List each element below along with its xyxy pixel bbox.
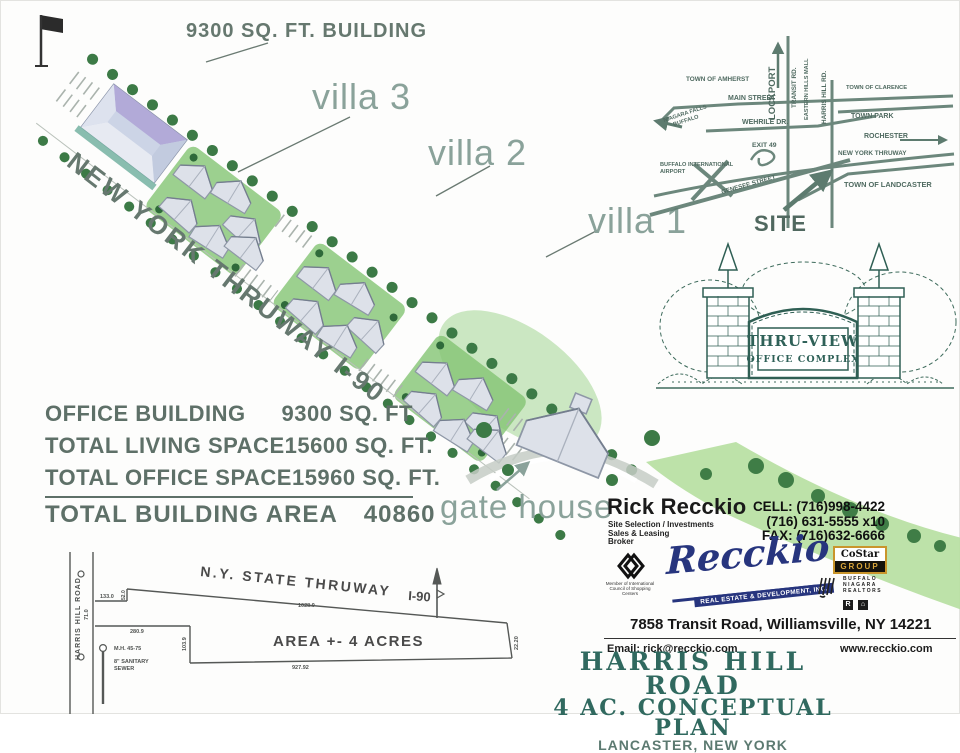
manhole-icons <box>78 571 106 660</box>
sewer-label-1: 8" SANITARY <box>114 659 149 665</box>
broker-address: 7858 Transit Road, Williamsville, NY 142… <box>630 616 931 633</box>
sign-subtitle: OFFICE COMPLEX <box>746 354 859 365</box>
survey-area-label: AREA +- 4 ACRES <box>273 633 424 650</box>
dim-top: 1028.9 <box>298 603 315 609</box>
costar-name: CoStar <box>835 548 885 561</box>
row-label: OFFICE BUILDING <box>45 401 246 427</box>
realtors-line: REALTORS <box>843 588 882 594</box>
recckio-logo-text: Recckio <box>666 529 816 580</box>
icsc-logo: Member of International Council of Shopp… <box>604 552 656 596</box>
map-label-genesee-street: GENESEE STREET <box>721 174 777 196</box>
map-label-wehrile-dr: WEHRILE DR. <box>742 119 788 126</box>
map-label-harris-hill-rd: HARRIS HILL RD. <box>821 71 828 124</box>
waterfall-icon <box>818 576 840 598</box>
dim-280: 280.9 <box>130 629 144 635</box>
dim-2220: 22.20 <box>514 636 520 650</box>
survey-i90-label: I-90 <box>408 588 431 605</box>
realtor-badges: R ⌂ <box>843 600 868 610</box>
table-row: TOTAL LIVING SPACE 15600 SQ. FT. <box>45 430 413 462</box>
row-value: 15960 SQ. FT. <box>292 465 440 491</box>
dim-103: 103.9 <box>182 637 188 651</box>
lantern-icon <box>719 244 888 288</box>
dim-bottom: 927.92 <box>292 665 309 671</box>
inset-location-map: LOCKPORT TRANSIT RD. EASTERN HILLS MALL … <box>648 28 958 236</box>
map-label-town-of-amherst: TOWN OF AMHERST <box>686 76 749 83</box>
map-label-lockport: LOCKPORT <box>767 67 778 121</box>
conceptual-plan-document: 9300 SQ. FT. BUILDING villa 3 villa 2 vi… <box>0 0 960 714</box>
dim-133: 133.0 <box>100 594 114 600</box>
survey-thruway-label: N.Y. STATE THRUWAY <box>200 563 392 599</box>
map-label-transit-rd: TRANSIT RD. <box>791 67 798 108</box>
table-row: TOTAL OFFICE SPACE 15960 SQ. FT. <box>45 462 413 494</box>
total-value: 40860 <box>364 501 436 529</box>
map-label-town-of-clarence: TOWN OF CLARENCE <box>846 85 907 91</box>
map-roads <box>650 36 954 228</box>
row-label: TOTAL OFFICE SPACE <box>45 465 292 491</box>
row-value: 15600 SQ. FT. <box>285 433 433 459</box>
villa-2-label: villa 2 <box>428 132 527 174</box>
row-value: 9300 SQ. FT <box>282 401 413 427</box>
sign-name: THRU-VIEW <box>747 332 859 350</box>
dim-52: 52.0 <box>121 590 127 600</box>
villa-3-label: villa 3 <box>312 76 411 118</box>
map-label-exit-49: EXIT 49 <box>752 142 777 149</box>
map-label-rochester: ROCHESTER <box>864 133 908 140</box>
survey-diagram: HARRIS HILL ROAD N.Y. STATE THRUWAY I-90… <box>30 538 550 714</box>
title-road: HARRIS HILL ROAD <box>538 650 848 698</box>
map-label-new-york-thruway: NEW YORK THRUWAY <box>838 150 907 157</box>
icsc-mark-icon <box>613 552 647 580</box>
equal-housing-icon: ⌂ <box>858 600 868 610</box>
sewer-label-2: SEWER <box>114 666 134 672</box>
realtor-r-icon: R <box>843 600 853 610</box>
row-label: TOTAL LIVING SPACE <box>45 433 285 459</box>
divider-line <box>604 638 956 639</box>
buffalo-niagara-realtors-logo: BUFFALO NIAGARA REALTORS <box>818 576 882 598</box>
title-plan: 4 AC. CONCEPTUAL PLAN <box>538 698 848 738</box>
broker-cell-phone: CELL: (716)998-4422 <box>735 500 885 515</box>
icsc-caption: Member of International Council of Shopp… <box>604 581 656 596</box>
map-label-town-of-lancaster: TOWN OF LANDCASTER <box>844 180 932 189</box>
flag-icon <box>35 15 63 66</box>
sign-panel: THRU-VIEW OFFICE COMPLEX <box>746 309 859 378</box>
dim-71: 71.0 <box>84 609 90 620</box>
title-city: LANCASTER, NEW YORK <box>538 738 848 753</box>
costar-group-label: GROUP <box>835 561 885 572</box>
building-sqft-label: 9300 SQ. FT. BUILDING <box>186 20 427 43</box>
entrance-sign-illustration: THRU-VIEW OFFICE COMPLEX <box>652 226 960 394</box>
costar-group-logo: CoStar GROUP <box>833 546 887 574</box>
recckio-logo: Recckio <box>666 542 816 580</box>
survey-road-label: HARRIS HILL ROAD <box>75 577 82 660</box>
map-label-main-street: MAIN STREET <box>728 95 776 102</box>
broker-website: www.recckio.com <box>840 643 933 655</box>
table-rule <box>45 496 413 498</box>
map-label-eastern-hills: EASTERN HILLS MALL <box>804 58 810 120</box>
map-label-town-park: TOWN PARK <box>851 113 894 120</box>
map-label-airport: AIRPORT <box>660 169 686 175</box>
map-label-buffalo-international: BUFFALO INTERNATIONAL <box>660 162 734 168</box>
gate-house-label: gate house <box>440 488 613 526</box>
table-row: OFFICE BUILDING 9300 SQ. FT <box>45 398 413 430</box>
north-arrow-icon <box>433 568 444 618</box>
manhole-label: M.H. 45-75 <box>114 646 141 652</box>
title-block: HARRIS HILL ROAD 4 AC. CONCEPTUAL PLAN L… <box>538 650 848 753</box>
building-area-table: OFFICE BUILDING 9300 SQ. FT TOTAL LIVING… <box>45 398 413 529</box>
broker-name: Rick Recckio <box>607 494 746 520</box>
total-label: TOTAL BUILDING AREA <box>45 501 338 529</box>
table-total-row: TOTAL BUILDING AREA 40860 <box>45 501 413 529</box>
